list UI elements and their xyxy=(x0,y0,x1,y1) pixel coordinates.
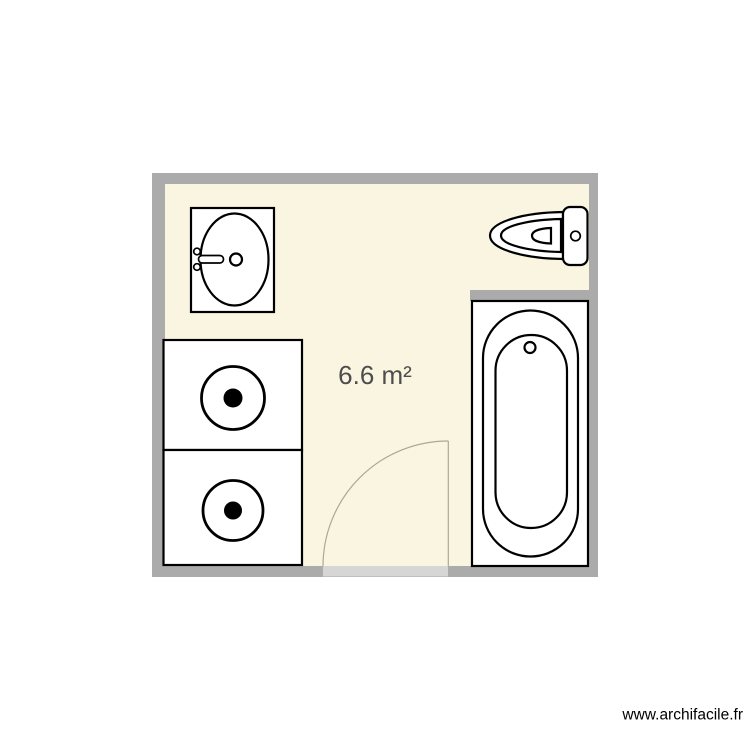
sink-faucet-spout xyxy=(199,256,224,264)
bathtub[interactable] xyxy=(472,301,588,566)
washing-machine-top-door-hub xyxy=(224,389,243,408)
toilet-drain xyxy=(532,228,551,244)
wall-segment-bathtub-niche xyxy=(470,290,589,301)
sink-faucet-handle-top xyxy=(194,248,201,255)
toilet-flush-button xyxy=(571,231,581,241)
washing-machine-bottom[interactable] xyxy=(164,450,303,565)
bathtub-drain xyxy=(525,342,536,353)
floor-plan-page: 6.6 m² www.archifacile.fr xyxy=(0,0,750,750)
sink[interactable] xyxy=(191,208,274,312)
bathtub-inner-basin xyxy=(496,335,568,528)
watermark: www.archifacile.fr xyxy=(621,707,743,724)
washing-machine-top[interactable] xyxy=(164,340,303,450)
door-opening xyxy=(323,566,448,577)
washing-machine-bottom-door-hub xyxy=(224,502,242,520)
area-label: 6.6 m² xyxy=(338,360,412,390)
floor-plan-canvas: 6.6 m² www.archifacile.fr xyxy=(0,0,750,750)
sink-faucet-handle-bottom xyxy=(194,264,201,271)
sink-drain xyxy=(230,254,242,266)
